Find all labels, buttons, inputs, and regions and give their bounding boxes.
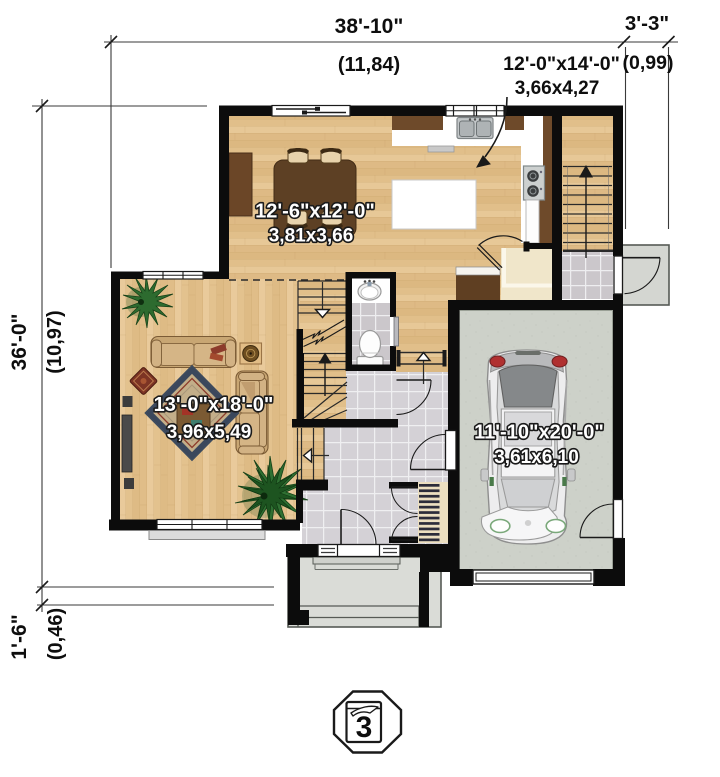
svg-text:(11,84): (11,84) [338, 54, 400, 76]
svg-text:3'-3": 3'-3" [625, 12, 669, 35]
svg-text:(10,97): (10,97) [44, 310, 66, 373]
svg-text:(0,99): (0,99) [623, 52, 674, 74]
svg-text:12'-6"x12'-0": 12'-6"x12'-0" [255, 201, 375, 223]
svg-text:3,96x5,49: 3,96x5,49 [167, 422, 252, 443]
svg-text:11'-10"x20'-0": 11'-10"x20'-0" [474, 422, 604, 444]
svg-text:3,81x3,66: 3,81x3,66 [269, 226, 354, 247]
svg-text:13'-0"x18'-0": 13'-0"x18'-0" [154, 394, 274, 416]
svg-text:1'-6": 1'-6" [8, 614, 31, 659]
svg-text:12'-0"x14'-0": 12'-0"x14'-0" [503, 53, 620, 75]
svg-text:3,61x6,10: 3,61x6,10 [494, 447, 579, 468]
svg-text:3,66x4,27: 3,66x4,27 [515, 78, 600, 99]
svg-text:(0,46): (0,46) [45, 608, 67, 660]
svg-text:38'-10": 38'-10" [335, 15, 404, 38]
svg-text:3: 3 [356, 711, 373, 744]
svg-text:36'-0": 36'-0" [8, 314, 31, 371]
